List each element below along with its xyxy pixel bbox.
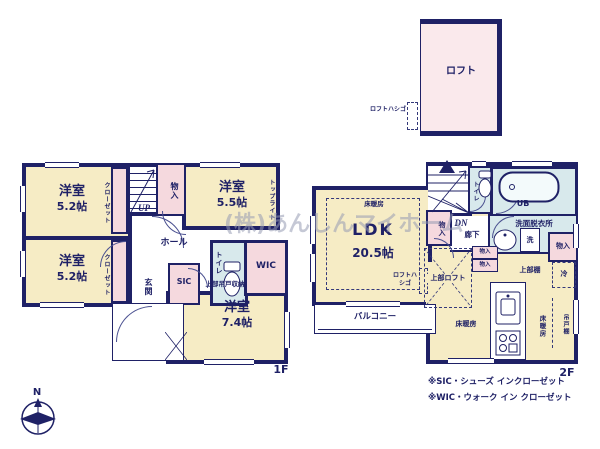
- loft-ladder-2f-label: ロフトハシゴ: [392, 272, 418, 289]
- watermark: (株)あんしんマイホーム: [224, 206, 463, 238]
- window-1f-top-a: [45, 162, 79, 168]
- storage-1f-label: 物入: [163, 172, 179, 210]
- wic-label: WIC: [248, 261, 284, 272]
- entrance-label: 玄関: [139, 272, 153, 302]
- hanging-cupboard-label: 吊戸棚: [558, 304, 569, 344]
- kitchen-sink-icon: [494, 290, 522, 326]
- window-1f-bottom-d: [204, 359, 254, 365]
- hall-label: ホール: [146, 238, 202, 249]
- window-2f-bath-top: [512, 161, 552, 167]
- upper-cabinet-label: 上部吊戸収納: [194, 280, 256, 288]
- washer-space: 洗: [520, 228, 540, 252]
- window-1f-top-c: [200, 162, 240, 168]
- washer-label: 洗: [527, 236, 534, 245]
- window-2f-ldk-left-b: [310, 254, 316, 282]
- toilet-1f-label: トイレ: [212, 246, 223, 280]
- loft-ladder-label: ロフトハシゴ: [364, 106, 406, 114]
- balcony-railing-line: [318, 329, 432, 330]
- compass-icon: [16, 396, 60, 440]
- floorplan-canvas: ロフト ロフトハシゴ 洋室 5.2帖 洋室 5.2帖: [0, 0, 600, 449]
- toilet-2f-label: トイレ: [469, 174, 479, 208]
- note-wic: ※WIC・ウォーク イン クローゼット: [428, 393, 592, 404]
- window-2f-kitchen-right: [573, 300, 579, 334]
- storage-2f-right-label: 物入: [550, 242, 576, 251]
- toilet-icon-2f: [477, 170, 493, 200]
- window-1f-left-b: [20, 251, 26, 277]
- ldk-size: 20.5帖: [327, 246, 419, 261]
- room-d-name: 洋室: [201, 300, 273, 316]
- upper-shelf-label: 上部棚: [508, 266, 552, 275]
- window-1f-bottom-b: [40, 302, 84, 308]
- floor1-label: 1F: [268, 363, 294, 377]
- kitchen-heating-label-v: 床暖房: [534, 306, 546, 346]
- storage-2f-small-a-label: 物入: [473, 249, 497, 256]
- kitchen-heating-label: 床暖房: [446, 320, 486, 329]
- note-sic: ※SIC・シューズ インクローゼット: [428, 377, 592, 388]
- closet-b-label: クローゼット: [97, 246, 110, 304]
- closet-a-label: クローゼット: [97, 172, 110, 234]
- upper-loft-label: 上部ロフト: [426, 274, 470, 283]
- storage-2f-small-b-label: 物入: [473, 262, 497, 269]
- window-2f-toilet-top: [472, 161, 486, 167]
- loft-ladder-mark: [407, 102, 418, 130]
- washroom-label: 洗面脱衣所: [496, 219, 572, 228]
- fridge-label: 冷: [554, 270, 574, 279]
- room-d-size: 7.4帖: [201, 316, 273, 330]
- up-label: UP: [130, 203, 158, 214]
- window-2f-balcony-door: [346, 301, 400, 307]
- window-2f-kitchen-bottom: [448, 358, 494, 364]
- room-c-name: 洋室: [196, 180, 268, 196]
- bath-label: UB: [506, 199, 540, 209]
- balcony-label: バルコニー: [336, 312, 414, 323]
- window-1f-left-a: [20, 186, 26, 212]
- loft-room-label: ロフト: [430, 66, 492, 79]
- compass-north-label: N: [30, 387, 44, 400]
- window-1f-right-d: [284, 312, 290, 348]
- stove-icon: [494, 330, 522, 356]
- entry-door-mark: [165, 332, 187, 360]
- room-d-label: 洋室 7.4帖: [201, 300, 273, 330]
